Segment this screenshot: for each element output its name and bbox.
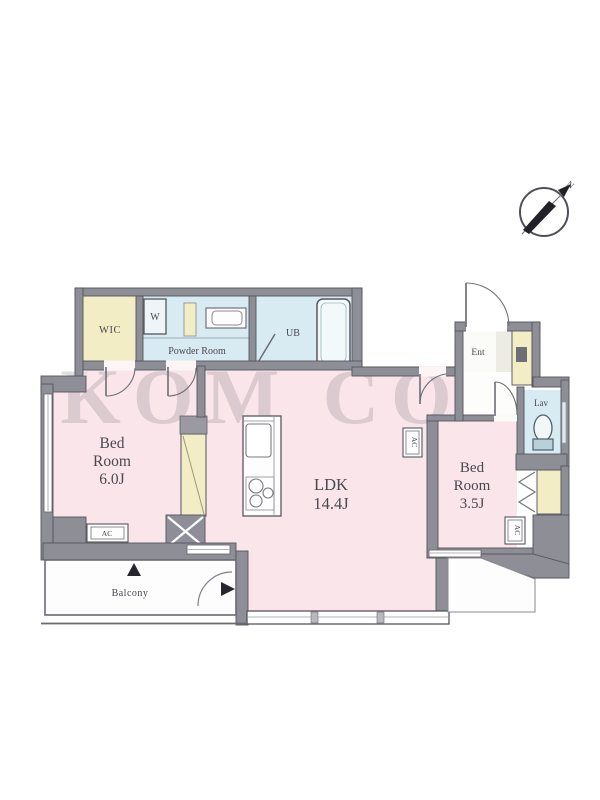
svg-text:W: W	[150, 312, 160, 323]
svg-text:14.4J: 14.4J	[313, 494, 349, 513]
svg-text:Lav: Lav	[534, 398, 548, 408]
svg-text:Room: Room	[93, 453, 131, 470]
svg-text:Bed: Bed	[100, 435, 125, 452]
svg-text:WIC: WIC	[99, 325, 121, 336]
svg-text:Balcony: Balcony	[112, 588, 149, 599]
svg-text:LDK: LDK	[314, 475, 348, 494]
svg-text:AC: AC	[410, 437, 419, 447]
svg-text:AC: AC	[513, 525, 522, 535]
svg-text:AC: AC	[102, 529, 112, 538]
svg-text:Ent: Ent	[471, 348, 485, 358]
svg-text:3.5J: 3.5J	[460, 496, 485, 512]
svg-text:Room: Room	[454, 478, 491, 494]
svg-text:UB: UB	[286, 328, 300, 339]
svg-text:6.0J: 6.0J	[99, 471, 124, 488]
svg-text:Powder Room: Powder Room	[168, 346, 226, 357]
svg-text:Bed: Bed	[460, 460, 485, 476]
